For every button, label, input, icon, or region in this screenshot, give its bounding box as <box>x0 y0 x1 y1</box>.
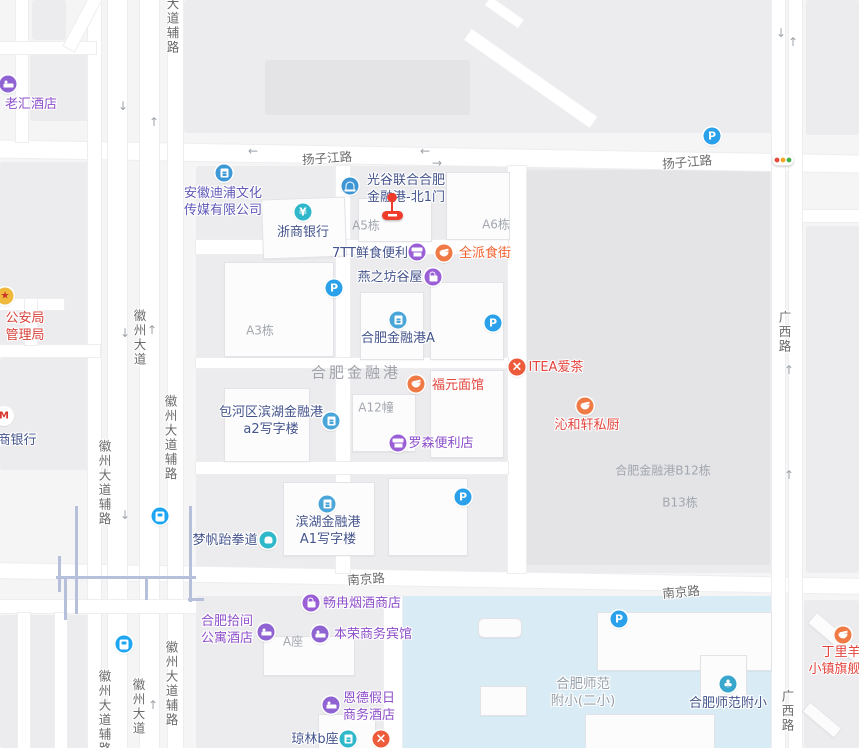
poi-label-qionglin-b[interactable]: 琼林b座 <box>291 731 338 748</box>
road-direction-arrow: → <box>432 156 442 170</box>
city-block <box>32 0 66 40</box>
road-minor <box>18 613 30 748</box>
city-block <box>265 60 470 115</box>
poi-label-line: 老汇酒店 <box>5 96 57 113</box>
hotel-icon[interactable] <box>258 624 275 641</box>
poi-label-line: 7TT鲜食便利 <box>332 245 408 262</box>
parking-icon[interactable] <box>704 128 721 145</box>
poi-label-7tt-fresh-store[interactable]: 7TT鲜食便利 <box>332 245 408 262</box>
poi-label-line: 丁里羊 <box>808 644 859 661</box>
poi-label-zheshang-bank[interactable]: 浙商银行 <box>277 224 329 241</box>
road-label: 大道辅路 <box>163 0 182 55</box>
school-building <box>478 618 522 638</box>
poi-label-line: 合肥金融港A <box>361 330 435 347</box>
road-minor <box>55 613 67 748</box>
restaurant-bowl-icon[interactable] <box>436 245 453 262</box>
poi-label-mengfan-taekwondo[interactable]: 梦帆跆拳道 <box>192 532 257 549</box>
metro-line <box>188 598 204 601</box>
road-label: 扬子江路 <box>301 146 352 168</box>
gate-entrance-icon[interactable] <box>342 178 359 195</box>
road-direction-arrow: ↑ <box>784 363 794 377</box>
poi-label-laohui-hotel[interactable]: 老汇酒店 <box>5 96 57 113</box>
road-label: 广西路 <box>778 689 797 733</box>
convenience-store-icon[interactable] <box>409 244 426 261</box>
road-label: 徽州大道 <box>129 678 148 736</box>
parking-icon[interactable] <box>326 280 343 297</box>
road-huizhou-service-w <box>88 0 101 748</box>
road-direction-arrow: ↓ <box>120 508 130 522</box>
road-minor <box>0 600 196 613</box>
poi-label-line: A1写字楼 <box>295 531 360 548</box>
poi-label-dingliyang-flagship[interactable]: 丁里羊小镇旗舰店 <box>808 644 859 678</box>
bus-station-icon[interactable] <box>152 508 169 525</box>
poi-label-line: 梦帆跆拳道 <box>192 532 257 549</box>
poi-label-line: 浙商银行 <box>277 224 329 241</box>
area-label-b12-bldg: 合肥金融港B12栋 <box>615 462 711 479</box>
convenience-store-icon[interactable] <box>390 435 407 452</box>
area-label-b13-bldg: B13栋 <box>662 494 698 511</box>
parking-icon[interactable] <box>455 489 472 506</box>
poi-label-line: 合肥师范附小 <box>689 695 767 712</box>
hotel-icon[interactable] <box>323 697 340 714</box>
poi-label-ende-holiday-hotel[interactable]: 恩德假日商务酒店 <box>343 690 395 724</box>
poi-label-line: 小镇旗舰店 <box>808 661 859 678</box>
road-label: 广西路 <box>775 310 794 354</box>
poi-label-benrong-hotel[interactable]: 本荣商务宾馆 <box>334 626 412 643</box>
restaurant-bowl-icon[interactable] <box>835 627 852 644</box>
poi-label-line: 公安局 <box>5 310 44 327</box>
area-label-a6-bldg: A6栋 <box>482 216 510 233</box>
poi-label-changran-tobacco-shop[interactable]: 畅冉烟酒商店 <box>323 595 401 612</box>
restaurant-bowl-icon[interactable] <box>577 398 594 415</box>
area-label-a-block: A座 <box>283 633 303 650</box>
poi-label-hefei-normal-primary[interactable]: 合肥师范附小 <box>689 695 767 712</box>
poi-label-line: 全派食街 <box>459 245 511 262</box>
poi-label-hefei-financial-port-a[interactable]: 合肥金融港A <box>361 330 435 347</box>
office-building-icon[interactable] <box>390 312 407 329</box>
poi-label-line: 琼林b座 <box>291 731 338 748</box>
poi-label-line: 商银行 <box>0 432 37 449</box>
poi-label-line: 附小(二小) <box>551 693 616 710</box>
road-label: 南京路 <box>347 567 386 589</box>
restaurant-cutlery-icon[interactable] <box>509 359 526 376</box>
poi-label-qinhexuan-kitchen[interactable]: 沁和轩私厨 <box>554 417 619 434</box>
metro-line <box>64 576 67 620</box>
poi-label-line: 合肥拾间 <box>201 613 253 630</box>
city-block <box>0 358 98 470</box>
road-label: 徽州大道辅路 <box>162 641 181 728</box>
poi-label-quanpai-food-street[interactable]: 全派食街 <box>459 245 511 262</box>
road-label: 南京路 <box>661 580 700 602</box>
poi-label-fuyuan-noodle[interactable]: 福元面馆 <box>432 377 484 394</box>
poi-label-line: 本荣商务宾馆 <box>334 626 412 643</box>
poi-label-line: 恩德假日 <box>343 690 395 707</box>
poi-label-line: a2写字楼 <box>219 421 323 438</box>
metro-line <box>75 506 78 614</box>
road-label: 徽州大道 <box>130 309 149 367</box>
traffic-light-icon <box>773 155 794 166</box>
road-direction-arrow: ↑ <box>149 115 159 129</box>
poi-label-baohe-a2-office[interactable]: 包河区滨湖金融港a2写字楼 <box>219 404 323 438</box>
road-minor <box>384 596 402 748</box>
city-block <box>806 0 859 135</box>
company-icon[interactable] <box>216 165 233 182</box>
building <box>388 478 468 556</box>
school-building <box>480 686 527 716</box>
bank-yen-icon[interactable] <box>295 204 312 221</box>
road-huizhou-main-e <box>140 0 159 748</box>
poi-label-cmb-bank[interactable]: 商银行 <box>0 432 37 449</box>
poi-label-line: 滨湖金融港 <box>295 514 360 531</box>
poi-label-line: 管理局 <box>5 327 44 344</box>
poi-label-line: 光谷联合合肥 <box>367 172 445 189</box>
shopping-bag-icon[interactable] <box>303 595 320 612</box>
road-minor <box>16 0 28 142</box>
poi-label-line: 畅冉烟酒商店 <box>323 595 401 612</box>
poi-label-line: 安徽迪浦文化 <box>184 185 262 202</box>
restaurant-bowl-icon[interactable] <box>408 376 425 393</box>
road-direction-arrow: ↓ <box>118 99 128 113</box>
road-direction-arrow: ↑ <box>788 35 798 49</box>
area-label-a3-bldg: A3栋 <box>246 322 274 339</box>
poi-label-line: 沁和轩私厨 <box>554 417 619 434</box>
city-block <box>0 615 88 748</box>
poi-label-yanzhifang-guwu[interactable]: 燕之坊谷屋 <box>357 269 422 286</box>
poi-label-police-bureau[interactable]: 公安局管理局 <box>5 310 44 344</box>
office-building-icon[interactable] <box>323 413 340 430</box>
poi-label-line: 传媒有限公司 <box>184 202 262 219</box>
poi-label-line: 金融港-北1门 <box>367 189 445 206</box>
poi-label-line: 商务酒店 <box>343 707 395 724</box>
road-minor <box>0 42 96 54</box>
building-icon[interactable] <box>340 731 357 748</box>
road-direction-arrow: ↑ <box>148 698 158 712</box>
poi-label-line: 罗森便利店 <box>408 435 473 452</box>
parking-icon[interactable] <box>485 315 502 332</box>
area-label-hefei-financial-port: 合肥金融港 <box>311 362 401 383</box>
bus-station-icon[interactable] <box>116 636 133 653</box>
poi-label-line: 燕之坊谷屋 <box>357 269 422 286</box>
road-direction-arrow: ↓ <box>776 26 786 40</box>
road-direction-arrow: ← <box>248 144 258 158</box>
poi-label-line: 包河区滨湖金融港 <box>219 404 323 421</box>
hotel-icon[interactable] <box>0 76 17 93</box>
hotel-icon[interactable] <box>312 626 329 643</box>
office-building-icon[interactable] <box>319 496 336 513</box>
poi-label-line: 福元面馆 <box>432 377 484 394</box>
building <box>224 262 334 357</box>
map-canvas[interactable]: 老汇酒店公安局管理局商银行安徽迪浦文化传媒有限公司浙商银行光谷联合合肥金融港-北… <box>0 0 859 748</box>
metro-line <box>58 556 61 592</box>
parking-icon[interactable] <box>611 611 628 628</box>
road-label: 徽州大道辅路 <box>161 395 180 482</box>
shopping-bag-icon[interactable] <box>425 269 442 286</box>
city-block <box>806 226 859 573</box>
poi-label-hefei-shijian-apartment-hotel[interactable]: 合肥拾间公寓酒店 <box>201 613 253 647</box>
restaurant-cutlery-icon[interactable] <box>373 731 390 748</box>
poi-label-anhui-dipu-media[interactable]: 安徽迪浦文化传媒有限公司 <box>184 185 262 219</box>
school-building <box>585 714 715 748</box>
martial-arts-icon[interactable] <box>260 532 277 549</box>
road-minor <box>0 345 100 357</box>
area-label-a5-bldg: A5栋 <box>352 217 380 234</box>
road-huizhou-service-e <box>168 0 183 748</box>
road-direction-arrow: ↑ <box>784 468 794 482</box>
poi-label-guanggu-north-gate1[interactable]: 光谷联合合肥金融港-北1门 <box>367 172 445 206</box>
destination-marker-icon[interactable] <box>381 193 403 220</box>
school-icon[interactable] <box>720 676 737 693</box>
area-label-a12-bldg: A12幢 <box>358 399 393 416</box>
metro-line <box>145 576 148 600</box>
poi-label-line: ITEA爱茶 <box>529 359 584 376</box>
poi-label-line: 公寓酒店 <box>201 630 253 647</box>
road-label: 徽州大道辅路 <box>95 670 114 748</box>
poi-label-lawson-store[interactable]: 罗森便利店 <box>408 435 473 452</box>
road-direction-arrow: ← <box>420 144 430 158</box>
poi-label-itea-tea[interactable]: ITEA爱茶 <box>529 359 584 376</box>
poi-label-line: 合肥师范 <box>551 676 616 693</box>
road-minor <box>803 210 859 222</box>
poi-label-binhu-a1-office[interactable]: 滨湖金融港A1写字楼 <box>295 514 360 548</box>
campus-road-h3 <box>196 462 508 474</box>
poi-label-hefei-normal-primary-2[interactable]: 合肥师范附小(二小) <box>551 676 616 710</box>
metro-line <box>189 506 192 602</box>
road-label: 徽州大道辅路 <box>95 440 114 527</box>
